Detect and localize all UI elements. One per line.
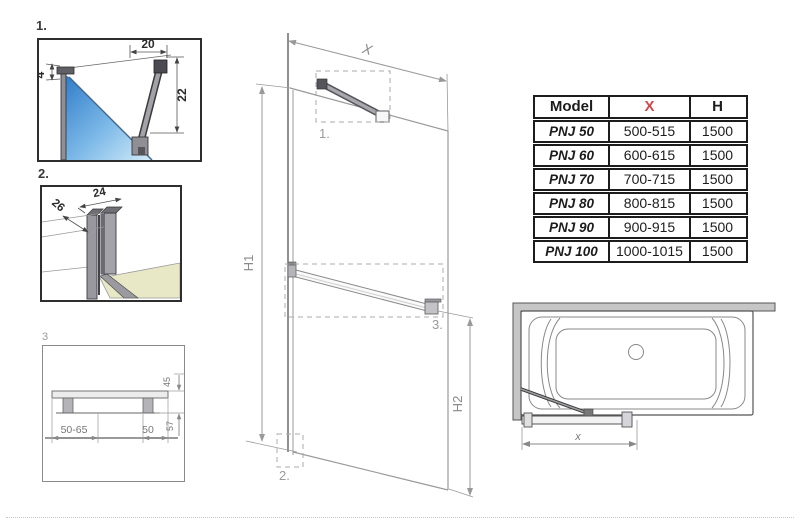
col-header-model: Model: [535, 97, 608, 117]
dim-4-value: 4: [39, 71, 47, 78]
callout-2: 2.: [279, 468, 290, 483]
height-value: 1500: [689, 146, 744, 165]
towel-rail-section: [52, 391, 168, 413]
model-name: PNJ 70: [535, 170, 608, 189]
table-row: PNJ 60 600-615 1500: [533, 144, 748, 167]
towel-rail: [288, 262, 441, 314]
detail-1-box: 20 22 4: [37, 38, 202, 162]
dim-X-value: X: [360, 40, 375, 58]
size-table: Model X H PNJ 50 500-515 1500 PNJ 60 600…: [533, 95, 748, 264]
detail-1-drawing: 20 22 4: [39, 40, 200, 160]
table-row: PNJ 80 800-815 1500: [533, 192, 748, 215]
page-border-line: [6, 517, 794, 518]
drain-icon: [629, 345, 644, 360]
table-row: PNJ 70 700-715 1500: [533, 168, 748, 191]
model-name: PNJ 80: [535, 194, 608, 213]
dim-20-value: 20: [141, 40, 155, 51]
x-range: 500-515: [608, 122, 689, 141]
dim-22-value: 22: [175, 88, 189, 102]
detail-3-label: 3: [42, 331, 48, 343]
callout-3: 3.: [432, 317, 443, 332]
callout-1: 1.: [319, 126, 330, 141]
dim-26-value: 26: [49, 197, 67, 214]
dim-span-value: 50-65: [61, 424, 88, 436]
height-value: 1500: [689, 242, 744, 261]
dim-lower-value: 57: [165, 421, 175, 431]
dim-upper-value: 45: [162, 377, 172, 387]
detail-2-box: 24 26: [40, 185, 182, 302]
top-support-strut: [317, 79, 389, 122]
support-strut: [132, 60, 167, 155]
glass-panel-outline: [246, 33, 448, 490]
height-value: 1500: [689, 122, 744, 141]
dim-24-value: 24: [92, 187, 107, 200]
col-header-h: H: [689, 97, 744, 117]
table-header-row: Model X H: [533, 95, 748, 119]
table-row: PNJ 50 500-515 1500: [533, 120, 748, 143]
dim-offset-value: 50: [142, 424, 154, 436]
height-value: 1500: [689, 170, 744, 189]
model-name: PNJ 100: [535, 242, 608, 261]
x-range: 800-815: [608, 194, 689, 213]
dim-x-value: x: [574, 431, 581, 443]
height-value: 1500: [689, 194, 744, 213]
technical-drawing-page: 1.: [0, 0, 800, 524]
detail-1-label: 1.: [36, 18, 47, 33]
detail-2-drawing: 24 26: [42, 187, 180, 300]
model-name: PNJ 90: [535, 218, 608, 237]
x-range: 1000-1015: [608, 242, 689, 261]
dim-H2-value: H2: [450, 396, 465, 413]
table-row: PNJ 100 1000-1015 1500: [533, 240, 748, 263]
main-elevation-drawing: X H1 1. 3. 2. H2: [235, 15, 505, 520]
col-header-x: X: [608, 97, 689, 117]
model-name: PNJ 50: [535, 122, 608, 141]
dim-H1-value: H1: [241, 255, 256, 272]
bathtub-plan-view: x: [505, 295, 800, 455]
detail-3-drawing: 50-65 50 45 57: [43, 346, 184, 481]
detail-2-label: 2.: [38, 166, 49, 181]
x-range: 900-915: [608, 218, 689, 237]
bathtub: [521, 311, 753, 415]
detail-3-box: 50-65 50 45 57: [42, 345, 185, 482]
x-range: 700-715: [608, 170, 689, 189]
height-value: 1500: [689, 218, 744, 237]
table-row: PNJ 90 900-915 1500: [533, 216, 748, 239]
model-name: PNJ 60: [535, 146, 608, 165]
x-range: 600-615: [608, 146, 689, 165]
dim-H1: [256, 84, 291, 441]
